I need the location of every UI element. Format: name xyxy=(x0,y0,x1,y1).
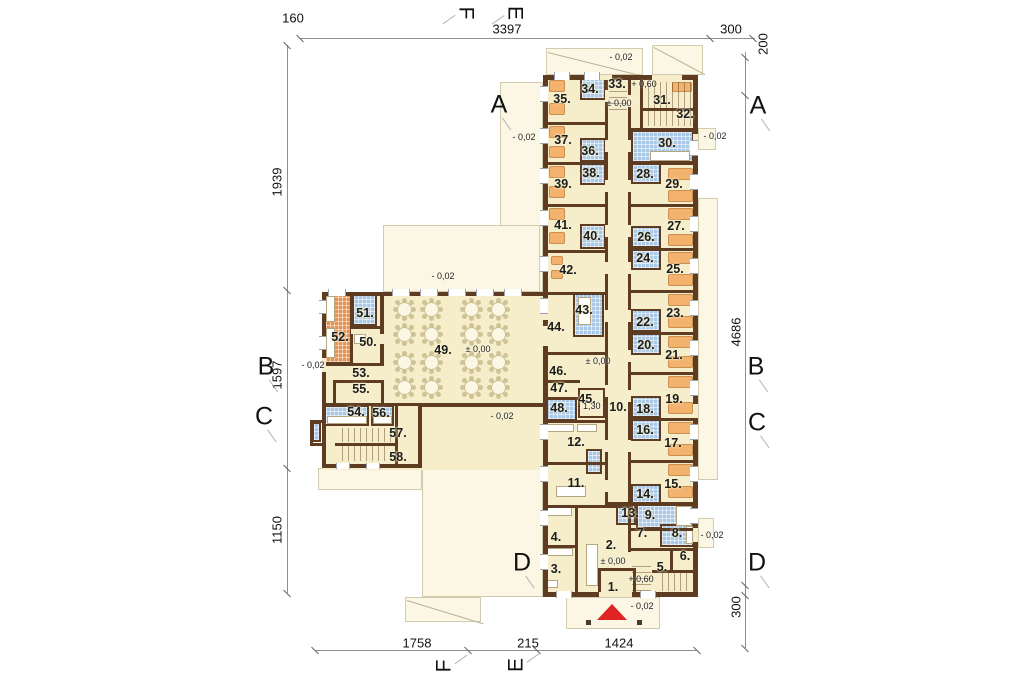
section-marker-tick xyxy=(760,576,769,589)
room-number-label: 31. xyxy=(653,93,670,107)
floor-plan-canvas: 1.2.3.4.5.6.7.8.9.10.11.12.13.14.15.16.1… xyxy=(0,0,1024,682)
level-annotation: - 0,02 xyxy=(301,360,324,370)
room-number-label: 34. xyxy=(581,82,598,96)
room-number-label: 11. xyxy=(568,476,585,490)
room-number-label: 29. xyxy=(665,177,682,191)
level-annotation: + 0,60 xyxy=(631,79,656,89)
room-number-label: 39. xyxy=(554,177,571,191)
room-number-label: 13. xyxy=(621,506,638,520)
portico-column xyxy=(586,620,591,625)
room-number-label: 53. xyxy=(352,366,369,380)
dimension-label: 215 xyxy=(517,636,539,651)
dimension-label: 4686 xyxy=(729,318,744,347)
section-marker-d: D xyxy=(513,551,531,576)
level-annotation: - 0,02 xyxy=(700,530,723,540)
room-number-label: 57. xyxy=(389,426,406,440)
room-number-label: 44. xyxy=(547,320,564,334)
room-number-label: 27. xyxy=(667,219,684,233)
section-marker-tick xyxy=(267,430,276,443)
level-annotation: - 1,30 xyxy=(577,401,600,411)
room-number-label: 10. xyxy=(609,400,626,414)
room-number-label: 14. xyxy=(636,487,653,501)
dimension-label: 300 xyxy=(720,22,742,37)
entrance-arrow xyxy=(597,604,627,620)
room-number-label: 12. xyxy=(567,435,584,449)
section-marker-d: D xyxy=(748,551,766,576)
room-number-label: 42. xyxy=(559,263,576,277)
section-marker-a: A xyxy=(750,94,767,119)
room-number-label: 30. xyxy=(658,136,675,150)
room-number-label: 46. xyxy=(549,364,566,378)
room-number-label: 16. xyxy=(636,423,653,437)
section-marker-tick xyxy=(761,119,770,132)
dimension-label: 160 xyxy=(282,11,304,26)
room-number-label: 56. xyxy=(372,406,389,420)
dimension-label: 1939 xyxy=(270,168,285,197)
room-number-label: 48. xyxy=(550,401,567,415)
room-number-label: 43. xyxy=(575,303,592,317)
section-marker-tick xyxy=(525,576,534,589)
room-number-label: 40. xyxy=(583,229,600,243)
section-marker-f: F xyxy=(456,7,477,20)
level-annotation: - 0,02 xyxy=(703,131,726,141)
level-annotation: ± 0,00 xyxy=(466,344,491,354)
dimension-label: 1758 xyxy=(403,636,432,651)
room-number-label: 50. xyxy=(359,335,376,349)
section-marker-tick xyxy=(759,380,768,393)
level-annotation: ± 0,00 xyxy=(607,98,632,108)
dimension-label: 3397 xyxy=(493,22,522,37)
level-annotation: ± 0,00 xyxy=(601,556,626,566)
dimension-label: 1424 xyxy=(605,636,634,651)
room-number-label: 25. xyxy=(666,262,683,276)
room-number-label: 20. xyxy=(637,338,654,352)
section-marker-e: E xyxy=(506,658,527,672)
room-number-label: 54. xyxy=(347,405,364,419)
dimension-label: 200 xyxy=(756,33,771,55)
dimension-label: 300 xyxy=(729,596,744,618)
dimension-label: 1150 xyxy=(270,516,285,544)
room-number-label: 41. xyxy=(554,218,571,232)
room-number-label: 49. xyxy=(434,343,451,357)
room-number-label: 35. xyxy=(553,92,570,106)
room-number-label: 38. xyxy=(582,166,599,180)
section-marker-f: F xyxy=(434,660,455,673)
room-number-label: 37. xyxy=(554,133,571,147)
room-number-label: 28. xyxy=(636,167,653,181)
section-marker-a: A xyxy=(491,93,508,118)
room-number-label: 17. xyxy=(664,436,681,450)
level-annotation: - 0,02 xyxy=(609,52,632,62)
room-number-label: 24. xyxy=(636,251,653,265)
room-number-label: 47. xyxy=(550,381,567,395)
portico-column xyxy=(637,620,642,625)
level-annotation: - 0,02 xyxy=(512,132,535,142)
room-number-label: 52. xyxy=(331,330,348,344)
level-annotation: - 0,02 xyxy=(630,601,653,611)
room-number-label: 23. xyxy=(666,306,683,320)
room-number-label: 58. xyxy=(389,450,406,464)
room-number-label: 9. xyxy=(645,508,655,522)
room-number-label: 6. xyxy=(680,549,690,563)
room-number-label: 8. xyxy=(672,526,682,540)
room-number-label: 3. xyxy=(551,562,561,576)
room-number-label: 19. xyxy=(665,392,682,406)
room-number-label: 36. xyxy=(581,144,598,158)
section-marker-tick xyxy=(760,436,769,449)
room-number-label: 4. xyxy=(551,530,561,544)
room-number-label: 26. xyxy=(637,230,654,244)
room-number-label: 32. xyxy=(676,107,693,121)
section-marker-b: B xyxy=(748,355,765,380)
room-number-label: 22. xyxy=(636,315,653,329)
section-marker-tick xyxy=(502,118,511,131)
room-number-label: 51. xyxy=(356,306,373,320)
level-annotation: + 0,60 xyxy=(628,574,653,584)
section-marker-tick xyxy=(443,15,456,24)
room-number-label: 33. xyxy=(608,77,625,91)
room-number-label: 5. xyxy=(657,560,667,574)
level-annotation: - 0,02 xyxy=(490,411,513,421)
room-number-label: 21. xyxy=(665,348,682,362)
section-marker-tick xyxy=(527,654,540,663)
level-annotation: - 0,02 xyxy=(431,271,454,281)
section-marker-c: C xyxy=(255,405,273,430)
room-number-label: 7. xyxy=(637,526,647,540)
section-marker-tick xyxy=(455,655,468,664)
room-number-label: 1. xyxy=(608,580,618,594)
section-marker-c: C xyxy=(748,411,766,436)
room-number-label: 55. xyxy=(352,382,369,396)
label-layer: 1.2.3.4.5.6.7.8.9.10.11.12.13.14.15.16.1… xyxy=(0,0,1024,682)
level-annotation: ± 0,00 xyxy=(586,356,611,366)
section-marker-b: B xyxy=(258,355,275,380)
section-marker-e: E xyxy=(505,6,526,20)
room-number-label: 2. xyxy=(606,538,616,552)
room-number-label: 15. xyxy=(664,477,681,491)
room-number-label: 18. xyxy=(636,402,653,416)
